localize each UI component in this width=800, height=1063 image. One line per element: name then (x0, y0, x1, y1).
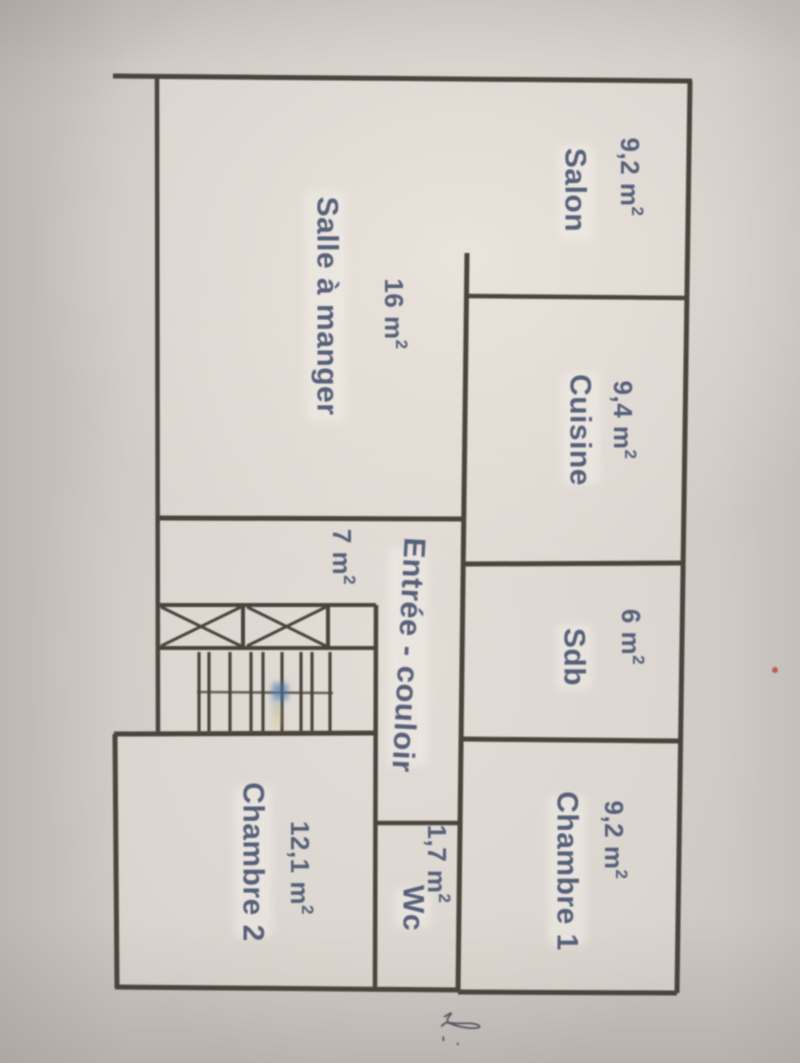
svg-text:Chambre 1: Chambre 1 (551, 791, 584, 951)
svg-text:9,4 m2: 9,4 m2 (608, 381, 641, 460)
svg-text:Sdb: Sdb (558, 628, 591, 686)
svg-text:Cuisine: Cuisine (564, 374, 597, 486)
svg-text:Wc: Wc (397, 885, 430, 931)
svg-text:16 m2: 16 m2 (379, 278, 412, 349)
svg-text:Salon: Salon (559, 148, 592, 232)
svg-text:Salle à manger: Salle à manger (311, 197, 344, 416)
svg-text:9,2 m2: 9,2 m2 (615, 138, 648, 217)
svg-text:9,2 m2: 9,2 m2 (599, 801, 632, 880)
svg-text:12,1 m2: 12,1 m2 (285, 821, 318, 915)
svg-text:Chambre 2: Chambre 2 (237, 782, 270, 942)
